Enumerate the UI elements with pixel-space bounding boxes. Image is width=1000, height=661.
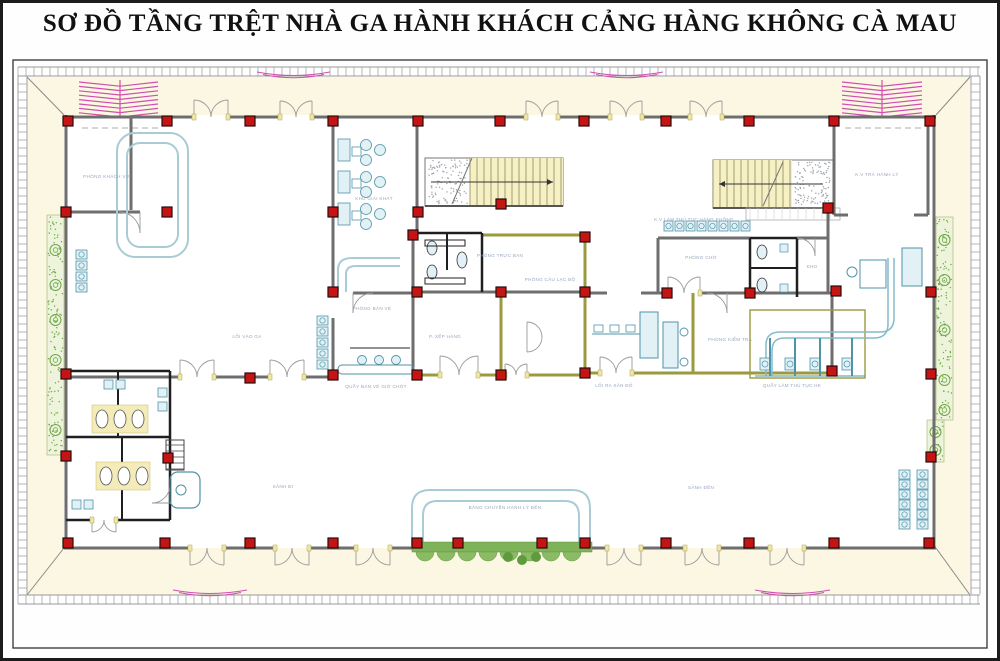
chair: [899, 510, 910, 519]
speckle-dot: [442, 177, 443, 178]
speckle-dot: [58, 381, 59, 382]
speckle-dot: [944, 266, 945, 267]
toilet: [118, 467, 130, 485]
column: [245, 538, 255, 548]
speckle-dot: [465, 193, 466, 194]
speckle-dot: [50, 228, 51, 229]
speckle-dot: [429, 196, 430, 197]
speckle-dot: [937, 330, 938, 331]
speckle-dot: [438, 203, 439, 204]
speckle-dot: [56, 222, 57, 223]
column: [661, 538, 671, 548]
door-jamb: [354, 545, 358, 551]
speckle-dot: [942, 366, 943, 367]
column: [579, 116, 589, 126]
speckle-dot: [797, 194, 798, 195]
speckle-dot: [811, 197, 812, 198]
speckle-dot: [435, 192, 436, 193]
chair: [741, 221, 750, 231]
speckle-dot: [51, 301, 52, 302]
speckle-dot: [948, 232, 949, 233]
speckle-dot: [438, 161, 439, 162]
bench: [338, 203, 350, 225]
speckle-dot: [434, 167, 435, 168]
column: [162, 116, 172, 126]
speckle-dot: [794, 187, 795, 188]
speckle-dot: [937, 375, 938, 376]
speckle-dot: [55, 412, 56, 413]
speckle-dot: [950, 264, 951, 265]
speckle-dot: [943, 358, 944, 359]
speckle-dot: [816, 172, 817, 173]
speckle-dot: [57, 234, 58, 235]
chair: [686, 221, 695, 231]
xray-machine: [663, 322, 678, 368]
speckle-dot: [49, 255, 50, 256]
speckle-dot: [827, 195, 828, 196]
column: [829, 116, 839, 126]
speckle-dot: [59, 370, 60, 371]
column: [823, 203, 833, 213]
room-label-arr_lobby: SẢNH ĐẾN: [688, 484, 714, 490]
door-jamb: [222, 545, 226, 551]
speckle-dot: [950, 351, 951, 352]
speckle-dot: [57, 412, 58, 413]
speckle-dot: [445, 167, 446, 168]
speckle-dot: [51, 391, 52, 392]
speckle-dot: [57, 256, 58, 257]
column: [496, 287, 506, 297]
room-label-carousel: BĂNG CHUYỀN HÀNH LÝ ĐẾN: [469, 504, 542, 510]
speckle-dot: [56, 294, 57, 295]
column: [328, 116, 338, 126]
speckle-dot: [942, 455, 943, 456]
column: [580, 232, 590, 242]
round-chair: [375, 145, 386, 156]
column: [245, 373, 255, 383]
speckle-dot: [818, 193, 819, 194]
door-jamb: [688, 114, 692, 120]
speckle-dot: [53, 224, 54, 225]
speckle-dot: [945, 350, 946, 351]
speckle-dot: [49, 387, 50, 388]
speckle-dot: [447, 177, 448, 178]
speckle-dot: [61, 241, 62, 242]
door-jamb: [605, 545, 609, 551]
speckle-dot: [812, 170, 813, 171]
speckle-dot: [820, 201, 821, 202]
speckle-dot: [48, 358, 49, 359]
speckle-dot: [799, 172, 800, 173]
column: [926, 287, 936, 297]
speckle-dot: [938, 288, 939, 289]
door-jamb: [717, 545, 721, 551]
speckle-dot: [940, 313, 941, 314]
speckle-dot: [945, 295, 946, 296]
chair: [917, 480, 928, 489]
column: [831, 286, 841, 296]
speckle-dot: [454, 163, 455, 164]
speckle-dot: [946, 268, 947, 269]
speckle-dot: [951, 340, 952, 341]
speckle-dot: [59, 401, 60, 402]
speckle-dot: [55, 229, 56, 230]
room-label-ticket_counter: QUẦY BÁN VÉ GIỜ CHÓT: [345, 383, 406, 389]
chair: [664, 221, 673, 231]
speckle-dot: [803, 199, 804, 200]
speckle-dot: [936, 308, 937, 309]
chair: [917, 500, 928, 509]
speckle-dot: [803, 194, 804, 195]
speckle-dot: [54, 272, 55, 273]
speckle-dot: [461, 201, 462, 202]
speckle-dot: [950, 356, 951, 357]
speckle-dot: [938, 307, 939, 308]
door-jamb: [310, 114, 314, 120]
room-label-checkin_area: K.V LÀM THỦ TỤC HÀNG KHÔNG: [654, 216, 734, 222]
hedge-bush: [531, 552, 541, 562]
speckle-dot: [439, 187, 440, 188]
speckle-dot: [824, 200, 825, 201]
speckle-dot: [943, 352, 944, 353]
round-chair: [361, 140, 372, 151]
speckle-dot: [829, 177, 830, 178]
speckle-dot: [797, 189, 798, 190]
speckle-dot: [825, 188, 826, 189]
speckle-dot: [825, 182, 826, 183]
speckle-dot: [437, 170, 438, 171]
speckle-dot: [823, 188, 824, 189]
speckle-dot: [459, 190, 460, 191]
speckle-dot: [60, 258, 61, 259]
room-label-entry: LỐI VÀO GA: [232, 333, 262, 339]
speckle-dot: [55, 316, 56, 317]
chair: [917, 490, 928, 499]
door-jamb: [556, 114, 560, 120]
speckle-dot: [815, 192, 816, 193]
speckle-dot: [941, 417, 942, 418]
column: [496, 199, 506, 209]
column: [61, 207, 71, 217]
door-jamb: [608, 114, 612, 120]
speckle-dot: [446, 202, 447, 203]
speckle-dot: [951, 279, 952, 280]
speckle-dot: [56, 310, 57, 311]
speckle-dot: [817, 203, 818, 204]
speckle-dot: [803, 168, 804, 169]
speckle-dot: [813, 198, 814, 199]
toilet: [757, 245, 767, 259]
toilet: [757, 278, 767, 292]
toilet: [427, 241, 437, 255]
column: [495, 116, 505, 126]
door-jamb: [278, 114, 282, 120]
speckle-dot: [456, 189, 457, 190]
column: [61, 451, 71, 461]
speckle-dot: [52, 271, 53, 272]
chair: [317, 327, 328, 336]
sink: [158, 402, 167, 411]
speckle-dot: [813, 171, 814, 172]
speckle-dot: [55, 430, 56, 431]
column: [926, 369, 936, 379]
sink: [158, 388, 167, 397]
speckle-dot: [942, 376, 943, 377]
door-jamb: [524, 114, 528, 120]
speckle-dot: [455, 165, 456, 166]
door-jamb: [476, 372, 480, 378]
speckle-dot: [829, 162, 830, 163]
speckle-dot: [450, 192, 451, 193]
speckle-dot: [50, 449, 51, 450]
speckle-dot: [57, 422, 58, 423]
speckle-dot: [804, 169, 805, 170]
door-jamb: [268, 374, 272, 380]
speckle-dot: [811, 162, 812, 163]
speckle-dot: [433, 172, 434, 173]
stool: [392, 356, 401, 365]
speckle-dot: [61, 445, 62, 446]
toilet: [114, 410, 126, 428]
speckle-dot: [54, 234, 55, 235]
speckle-dot: [61, 387, 62, 388]
speckle-dot: [61, 419, 62, 420]
speckle-dot: [943, 391, 944, 392]
speckle-dot: [798, 164, 799, 165]
round-chair: [375, 209, 386, 220]
speckle-dot: [937, 255, 938, 256]
speckle-dot: [823, 172, 824, 173]
speckle-dot: [944, 406, 945, 407]
speckle-dot: [53, 440, 54, 441]
speckle-dot: [821, 196, 822, 197]
baggage-machine: [902, 248, 922, 286]
room-label-cafe: KHU GIẢI KHÁT: [355, 195, 393, 201]
speckle-dot: [820, 166, 821, 167]
chair: [917, 520, 928, 529]
speckle-dot: [821, 190, 822, 191]
room-label-club: PHÒNG CÂU LẠC BỘ: [525, 276, 576, 282]
speckle-dot: [48, 391, 49, 392]
speckle-dot: [811, 201, 812, 202]
chair: [899, 480, 910, 489]
speckle-dot: [55, 349, 56, 350]
speckle-dot: [828, 166, 829, 167]
speckle-dot: [800, 198, 801, 199]
speckle-dot: [948, 269, 949, 270]
speckle-dot: [826, 172, 827, 173]
speckle-dot: [451, 159, 452, 160]
sink: [104, 380, 113, 389]
speckle-dot: [829, 180, 830, 181]
speckle-dot: [62, 347, 63, 348]
sink: [116, 380, 125, 389]
column: [827, 366, 837, 376]
speckle-dot: [942, 421, 943, 422]
room-label-baggage: K.V TRẢ HÀNH LÝ: [855, 171, 898, 177]
speckle-dot: [59, 314, 60, 315]
speckle-dot: [457, 166, 458, 167]
speckle-dot: [826, 177, 827, 178]
speckle-dot: [52, 436, 53, 437]
speckle-dot: [48, 300, 49, 301]
speckle-dot: [810, 202, 811, 203]
speckle-dot: [945, 400, 946, 401]
column: [829, 538, 839, 548]
column: [408, 230, 418, 240]
speckle-dot: [937, 267, 938, 268]
speckle-dot: [813, 185, 814, 186]
chair: [810, 358, 820, 370]
speckle-dot: [825, 163, 826, 164]
speckle-dot: [444, 200, 445, 201]
sink: [72, 500, 81, 509]
speckle-dot: [466, 203, 467, 204]
speckle-dot: [806, 162, 807, 163]
speckle-dot: [460, 162, 461, 163]
speckle-dot: [438, 202, 439, 203]
column: [328, 538, 338, 548]
door-jamb: [192, 114, 196, 120]
speckle-dot: [951, 392, 952, 393]
speckle-dot: [795, 203, 796, 204]
column: [328, 287, 338, 297]
xray-machine: [640, 312, 658, 358]
speckle-dot: [936, 413, 937, 414]
chair: [76, 261, 87, 270]
speckle-dot: [466, 160, 467, 161]
speckle-dot: [54, 414, 55, 415]
speckle-dot: [943, 263, 944, 264]
speckle-dot: [49, 403, 50, 404]
speckle-dot: [803, 187, 804, 188]
column: [580, 287, 590, 297]
speckle-dot: [815, 164, 816, 165]
speckle-dot: [808, 196, 809, 197]
speckle-dot: [795, 176, 796, 177]
room-label-exit_apron: LỐI RA SÂN ĐỖ: [595, 382, 633, 388]
speckle-dot: [824, 163, 825, 164]
speckle-dot: [436, 201, 437, 202]
speckle-dot: [944, 280, 945, 281]
speckle-dot: [827, 168, 828, 169]
speckle-dot: [942, 413, 943, 414]
round-chair: [361, 204, 372, 215]
speckle-dot: [430, 166, 431, 167]
speckle-dot: [435, 194, 436, 195]
door-jamb: [302, 374, 306, 380]
floor-plan-canvas: PHÒNG KHÁCH VIPKHU GIẢI KHÁTPHÒNG TRỰC B…: [0, 0, 1000, 661]
chair: [760, 358, 770, 370]
speckle-dot: [942, 426, 943, 427]
speckle-dot: [938, 359, 939, 360]
speckle-dot: [937, 223, 938, 224]
door-jamb: [525, 372, 529, 378]
chair: [917, 510, 928, 519]
speckle-dot: [809, 162, 810, 163]
speckle-dot: [798, 200, 799, 201]
chair: [842, 358, 852, 370]
speckle-dot: [941, 250, 942, 251]
speckle-dot: [809, 164, 810, 165]
speckle-dot: [800, 188, 801, 189]
speckle-dot: [453, 188, 454, 189]
column: [413, 207, 423, 217]
speckle-dot: [943, 249, 944, 250]
speckle-dot: [52, 401, 53, 402]
speckle-dot: [938, 296, 939, 297]
door-jamb: [114, 517, 118, 523]
column: [413, 116, 423, 126]
speckle-dot: [446, 191, 447, 192]
speckle-dot: [58, 390, 59, 391]
column: [925, 116, 935, 126]
speckle-dot: [51, 309, 52, 310]
chair: [76, 283, 87, 292]
speckle-dot: [54, 238, 55, 239]
speckle-dot: [938, 317, 939, 318]
door-jamb: [178, 374, 182, 380]
column: [328, 207, 338, 217]
speckle-dot: [431, 173, 432, 174]
column: [63, 538, 73, 548]
speckle-dot: [795, 199, 796, 200]
speckle-dot: [61, 350, 62, 351]
speckle-dot: [945, 247, 946, 248]
speckle-dot: [819, 162, 820, 163]
round-chair: [375, 177, 386, 188]
speckle-dot: [947, 391, 948, 392]
speckle-dot: [438, 200, 439, 201]
speckle-dot: [60, 445, 61, 446]
column: [537, 538, 547, 548]
room-label-vip: PHÒNG KHÁCH VIP: [83, 173, 130, 179]
speckle-dot: [454, 183, 455, 184]
speckle-dot: [815, 197, 816, 198]
stool: [358, 356, 367, 365]
speckle-dot: [456, 198, 457, 199]
speckle-dot: [796, 200, 797, 201]
speckle-dot: [936, 315, 937, 316]
speckle-dot: [825, 193, 826, 194]
speckle-dot: [57, 237, 58, 238]
column: [163, 453, 173, 463]
speckle-dot: [50, 341, 51, 342]
speckle-dot: [55, 275, 56, 276]
speckle-dot: [430, 186, 431, 187]
speckle-dot: [829, 182, 830, 183]
column: [661, 116, 671, 126]
chair: [730, 221, 739, 231]
room-label-checkin_counter: QUẦY LÀM THỦ TỤC HK: [763, 382, 822, 388]
column: [412, 287, 422, 297]
speckle-dot: [428, 169, 429, 170]
column: [412, 370, 422, 380]
speckle-dot: [431, 169, 432, 170]
room-label-queue: P. XẾP HÀNG: [429, 333, 461, 339]
speckle-dot: [52, 221, 53, 222]
speckle-dot: [49, 450, 50, 451]
speckle-dot: [820, 173, 821, 174]
speckle-dot: [60, 223, 61, 224]
speckle-dot: [50, 225, 51, 226]
speckle-dot: [433, 195, 434, 196]
speckle-dot: [801, 176, 802, 177]
speckle-dot: [798, 202, 799, 203]
speckle-dot: [828, 187, 829, 188]
speckle-dot: [48, 314, 49, 315]
chair: [76, 272, 87, 281]
